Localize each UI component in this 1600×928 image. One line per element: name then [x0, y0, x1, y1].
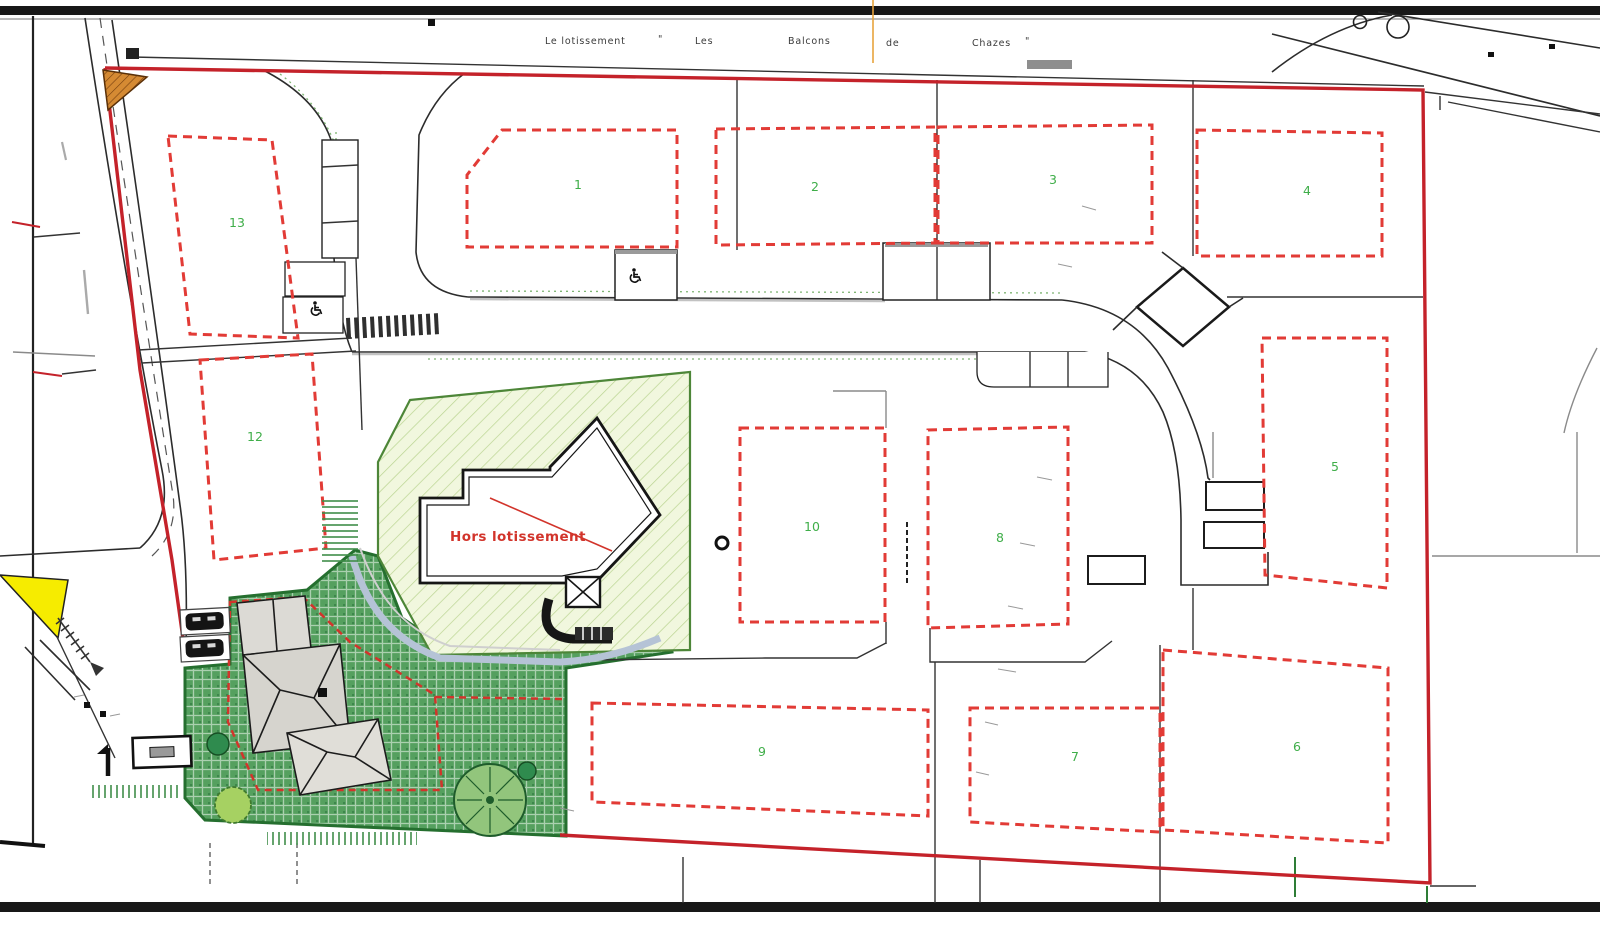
title-word: Les [695, 36, 713, 47]
ramp-stripes [575, 627, 613, 640]
car-icon [185, 612, 224, 631]
hors-lotissement-label: Hors lotissement [450, 529, 586, 545]
parking-bay [977, 352, 1108, 387]
large-tree-icon [454, 764, 526, 836]
boundary-marker [126, 48, 139, 59]
hedge-strip [322, 498, 358, 562]
lot-5-number: 5 [1331, 459, 1339, 474]
title-quote: " [1025, 36, 1030, 47]
site-plan-page: 1 2 3 4 5 6 7 8 9 10 12 13 [0, 0, 1600, 928]
survey-point [100, 711, 106, 717]
manhole-icon [716, 537, 728, 549]
lot-13-number: 13 [229, 215, 245, 230]
lot-1-number: 1 [574, 177, 582, 192]
car-icon [185, 639, 224, 658]
lot-2-number: 2 [811, 179, 819, 194]
garage-structure [1204, 522, 1264, 548]
lot-4-number: 4 [1303, 183, 1311, 198]
plan-canvas: 1 2 3 4 5 6 7 8 9 10 12 13 [0, 0, 1600, 928]
lot-7-number: 7 [1071, 749, 1079, 764]
survey-point [84, 702, 90, 708]
stair-block [566, 577, 600, 607]
parking-bay [285, 262, 345, 296]
bush-icon [215, 787, 251, 823]
accessible-parking-bay [615, 250, 677, 300]
lot-9-number: 9 [758, 744, 766, 759]
garage-structure [1206, 482, 1264, 510]
building-corner-marker [318, 688, 327, 697]
title-word: Balcons [788, 36, 831, 47]
title-word: Chazes [972, 38, 1011, 49]
lot-3-number: 3 [1049, 172, 1057, 187]
lot-6-number: 6 [1293, 739, 1301, 754]
hedge-strip [267, 832, 417, 845]
title-word: de [886, 38, 899, 49]
title-quote: " [658, 34, 663, 45]
hedge-strip [90, 785, 182, 798]
lot-8-number: 8 [996, 530, 1004, 545]
lot-10-number: 10 [804, 519, 820, 534]
parking-bays [322, 140, 358, 258]
culvert-marker [1027, 60, 1072, 69]
tree-icon [518, 762, 536, 780]
tree-icon [207, 733, 229, 755]
lot-12-number: 12 [247, 429, 263, 444]
title-word: Le lotissement [545, 36, 626, 47]
